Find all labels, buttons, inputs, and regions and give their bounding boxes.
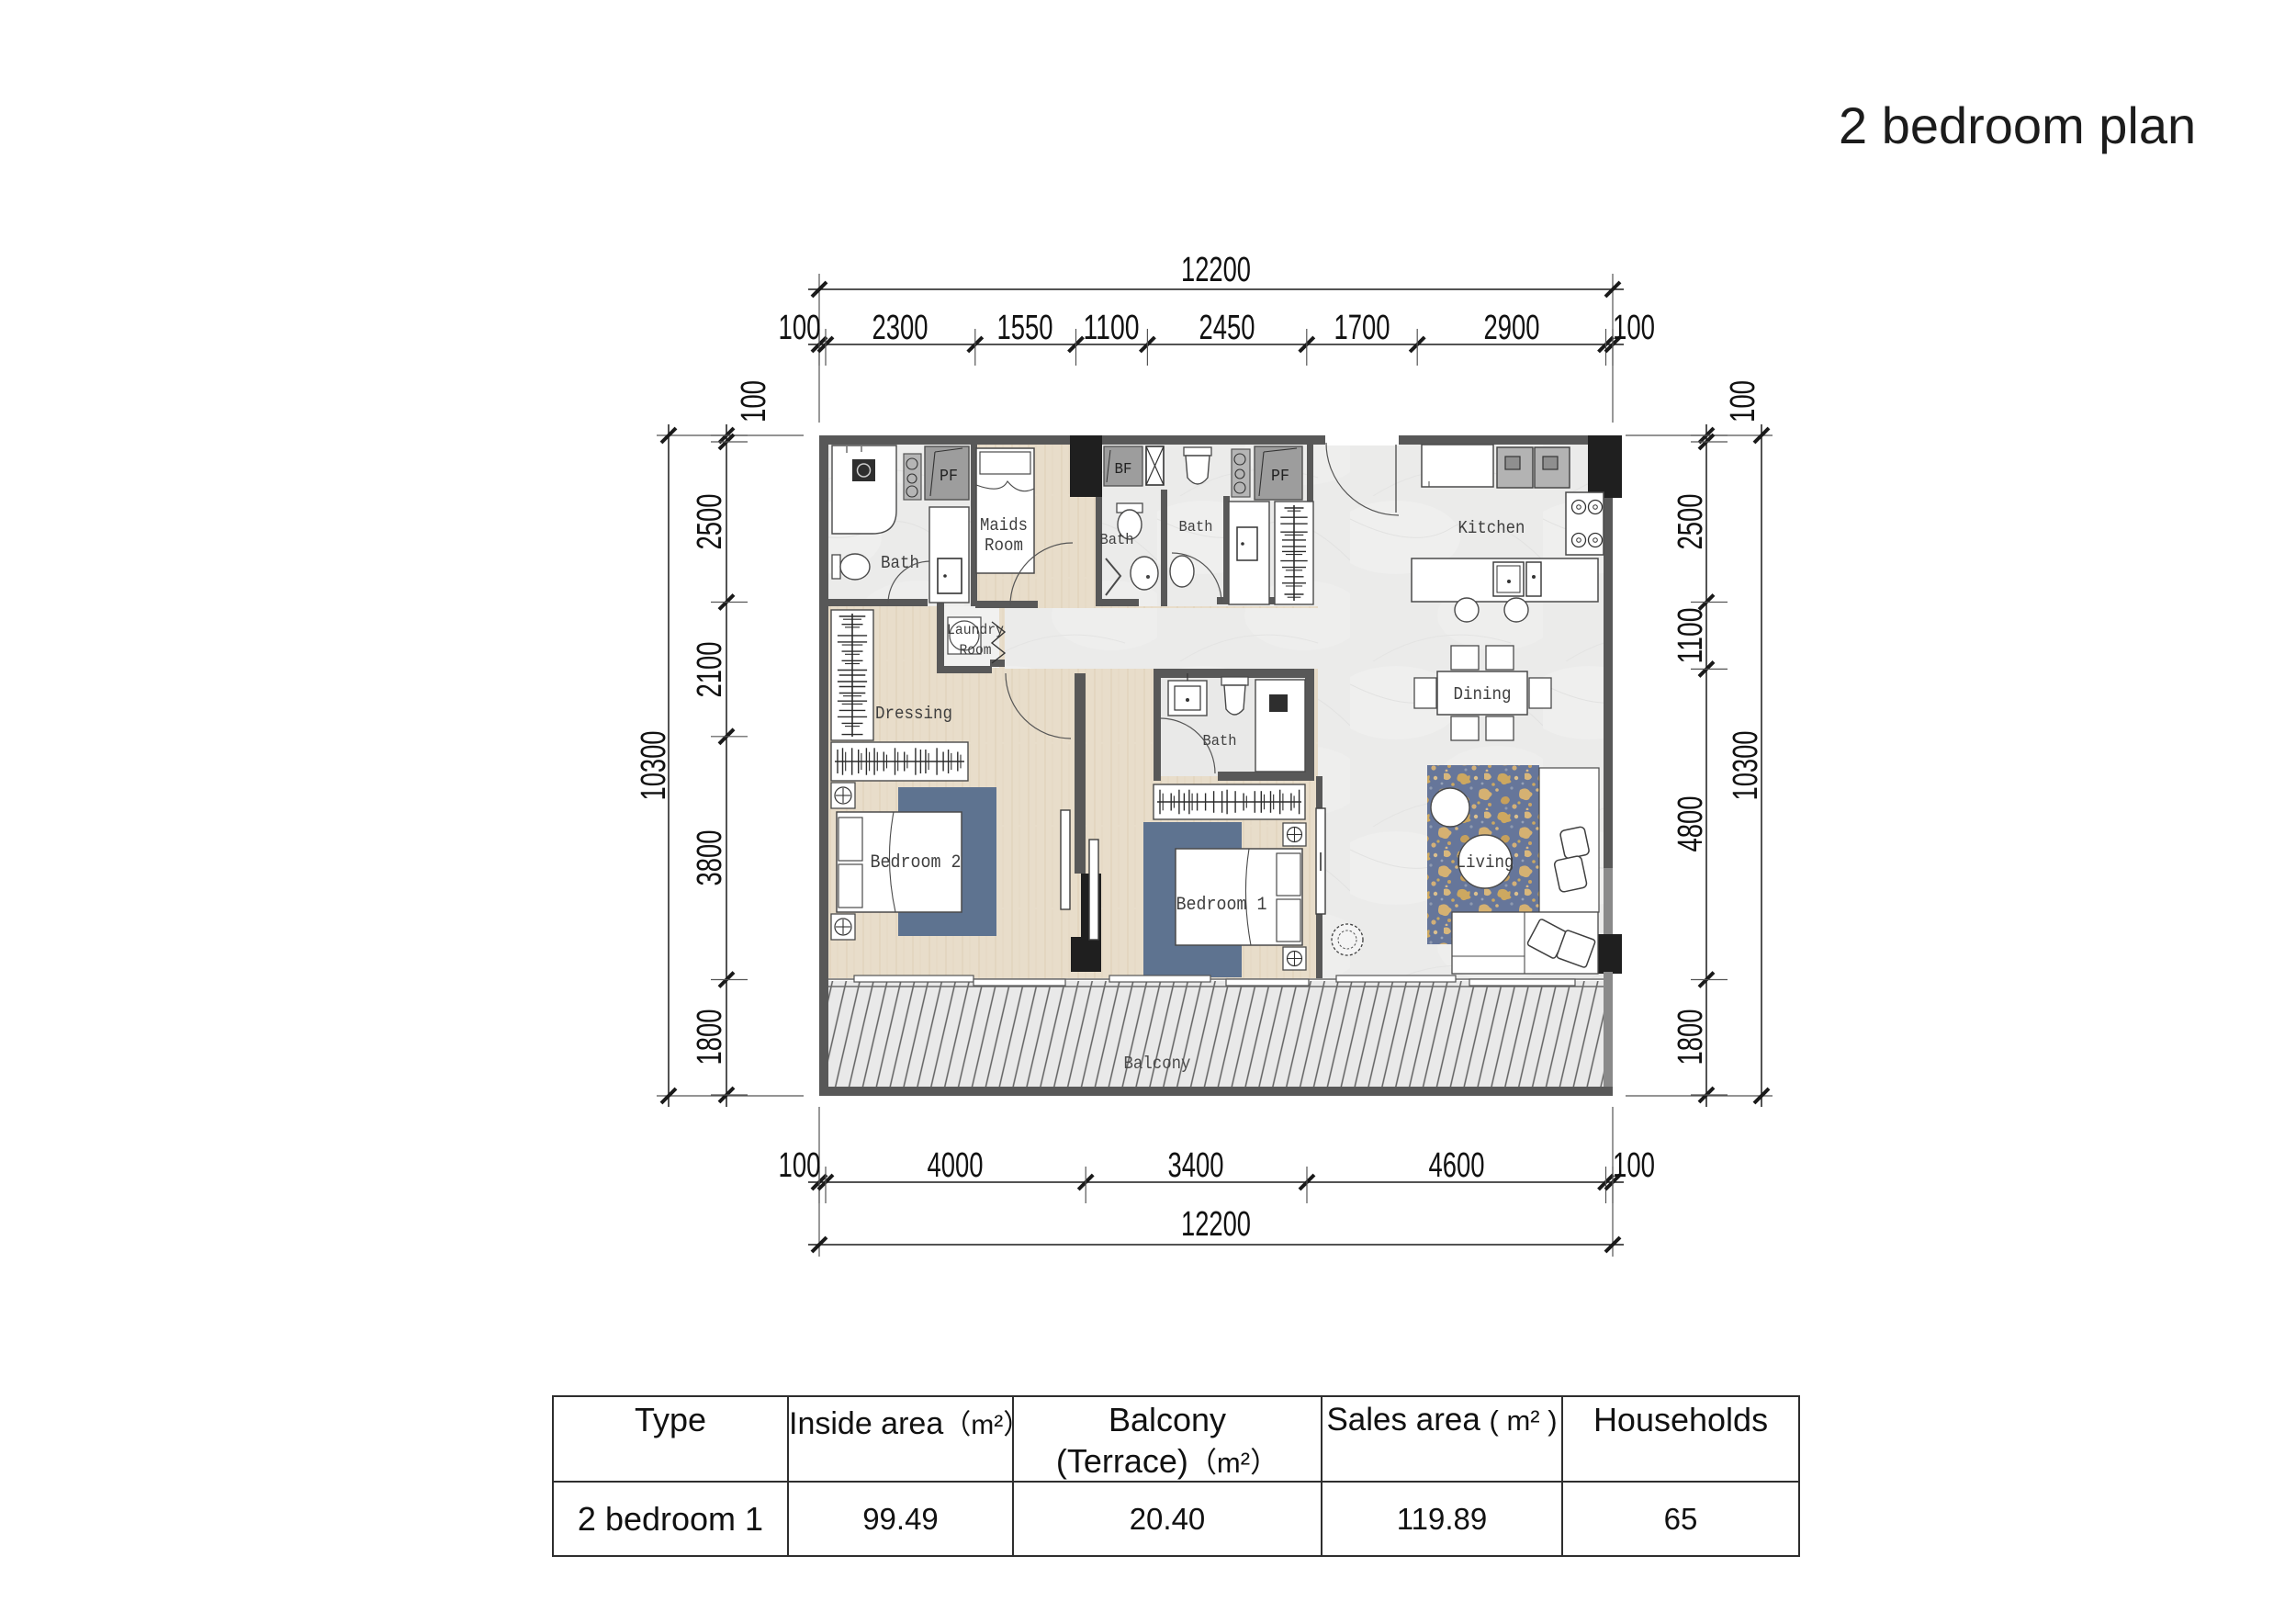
svg-text:10300: 10300 bbox=[1727, 731, 1765, 801]
svg-text:4600: 4600 bbox=[1429, 1146, 1485, 1185]
svg-text:Bedroom 1: Bedroom 1 bbox=[1176, 895, 1267, 916]
svg-text:1100: 1100 bbox=[1084, 309, 1140, 347]
svg-text:3800: 3800 bbox=[691, 830, 729, 886]
svg-text:12200: 12200 bbox=[1181, 251, 1251, 289]
svg-text:12200: 12200 bbox=[1181, 1205, 1251, 1244]
svg-text:100: 100 bbox=[735, 380, 773, 423]
svg-text:Living: Living bbox=[1457, 852, 1514, 873]
svg-text:1700: 1700 bbox=[1334, 309, 1390, 347]
svg-text:100: 100 bbox=[1613, 309, 1655, 347]
svg-text:PF: PF bbox=[940, 468, 958, 486]
svg-text:2100: 2100 bbox=[691, 642, 729, 698]
svg-text:Bedroom 2: Bedroom 2 bbox=[871, 852, 962, 874]
svg-text:Room: Room bbox=[985, 536, 1023, 556]
svg-text:1800: 1800 bbox=[691, 1009, 729, 1066]
svg-text:4800: 4800 bbox=[1671, 796, 1710, 852]
svg-text:BF: BF bbox=[1115, 461, 1132, 479]
svg-text:1550: 1550 bbox=[997, 309, 1053, 347]
svg-text:Bath: Bath bbox=[1203, 733, 1237, 750]
svg-text:100: 100 bbox=[1724, 380, 1762, 423]
svg-text:Maids: Maids bbox=[980, 515, 1028, 536]
svg-text:PF: PF bbox=[1271, 468, 1289, 486]
svg-text:2900: 2900 bbox=[1484, 309, 1540, 347]
svg-text:1100: 1100 bbox=[1671, 608, 1710, 664]
svg-text:2300: 2300 bbox=[872, 309, 929, 347]
svg-text:2500: 2500 bbox=[691, 494, 729, 550]
svg-text:3400: 3400 bbox=[1168, 1146, 1224, 1185]
svg-text:Bath: Bath bbox=[1179, 519, 1213, 536]
svg-text:Kitchen: Kitchen bbox=[1458, 518, 1525, 538]
svg-text:Dining: Dining bbox=[1454, 684, 1512, 705]
svg-text:2500: 2500 bbox=[1671, 494, 1710, 550]
svg-text:Balcony: Balcony bbox=[1124, 1054, 1191, 1074]
svg-text:Room: Room bbox=[960, 642, 992, 659]
svg-text:Dressing: Dressing bbox=[875, 704, 952, 724]
svg-text:100: 100 bbox=[1613, 1146, 1655, 1185]
svg-text:Bath: Bath bbox=[881, 553, 919, 573]
svg-text:10300: 10300 bbox=[635, 731, 673, 801]
svg-text:100: 100 bbox=[779, 309, 821, 347]
svg-text:4000: 4000 bbox=[928, 1146, 984, 1185]
svg-text:100: 100 bbox=[779, 1146, 821, 1185]
svg-text:Bath: Bath bbox=[1100, 532, 1134, 549]
svg-text:1800: 1800 bbox=[1671, 1009, 1710, 1066]
svg-text:2450: 2450 bbox=[1199, 309, 1255, 347]
